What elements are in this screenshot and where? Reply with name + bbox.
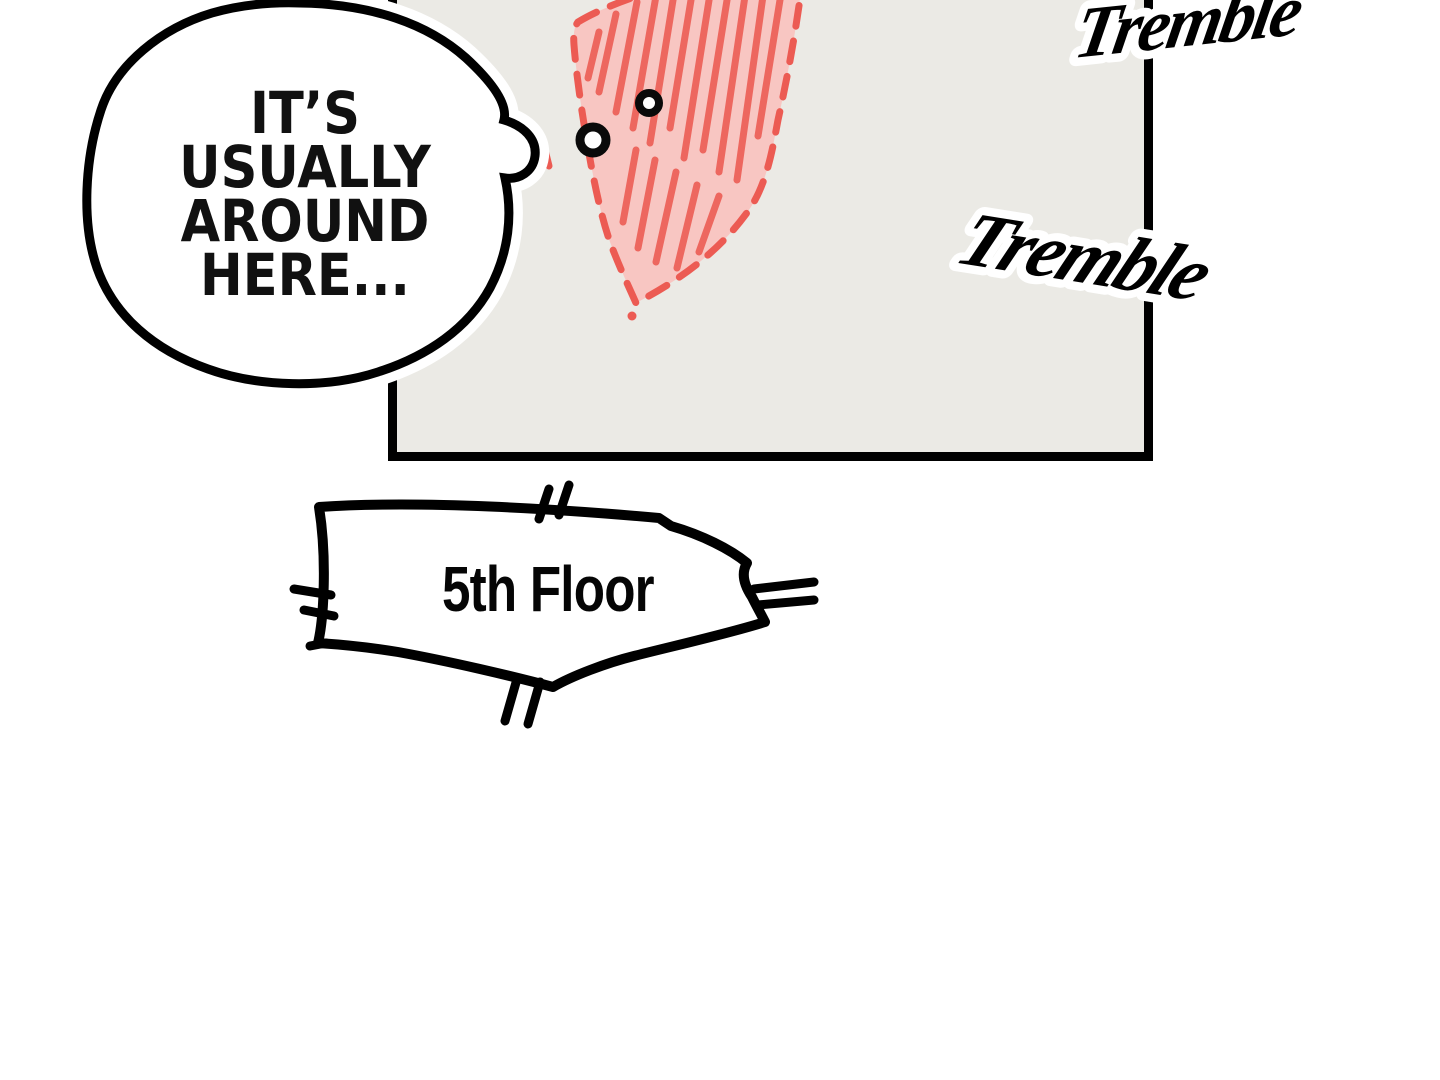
bubble-line: AROUND	[177, 194, 432, 248]
map-region-drawing	[525, 0, 825, 345]
comic-page: IT’S USUALLY AROUND HERE... Tremble Trem…	[0, 0, 1440, 1080]
bubble-line: HERE...	[177, 248, 432, 302]
map-marker-icon	[639, 93, 659, 113]
speech-bubble-text: IT’S USUALLY AROUND HERE...	[177, 86, 432, 302]
floor-sign-label: 5th Floor	[442, 556, 618, 622]
map-stray-dot	[628, 312, 637, 321]
map-marker-icon	[580, 127, 606, 153]
bubble-line: IT’S	[177, 86, 432, 140]
bubble-line: USUALLY	[177, 140, 432, 194]
